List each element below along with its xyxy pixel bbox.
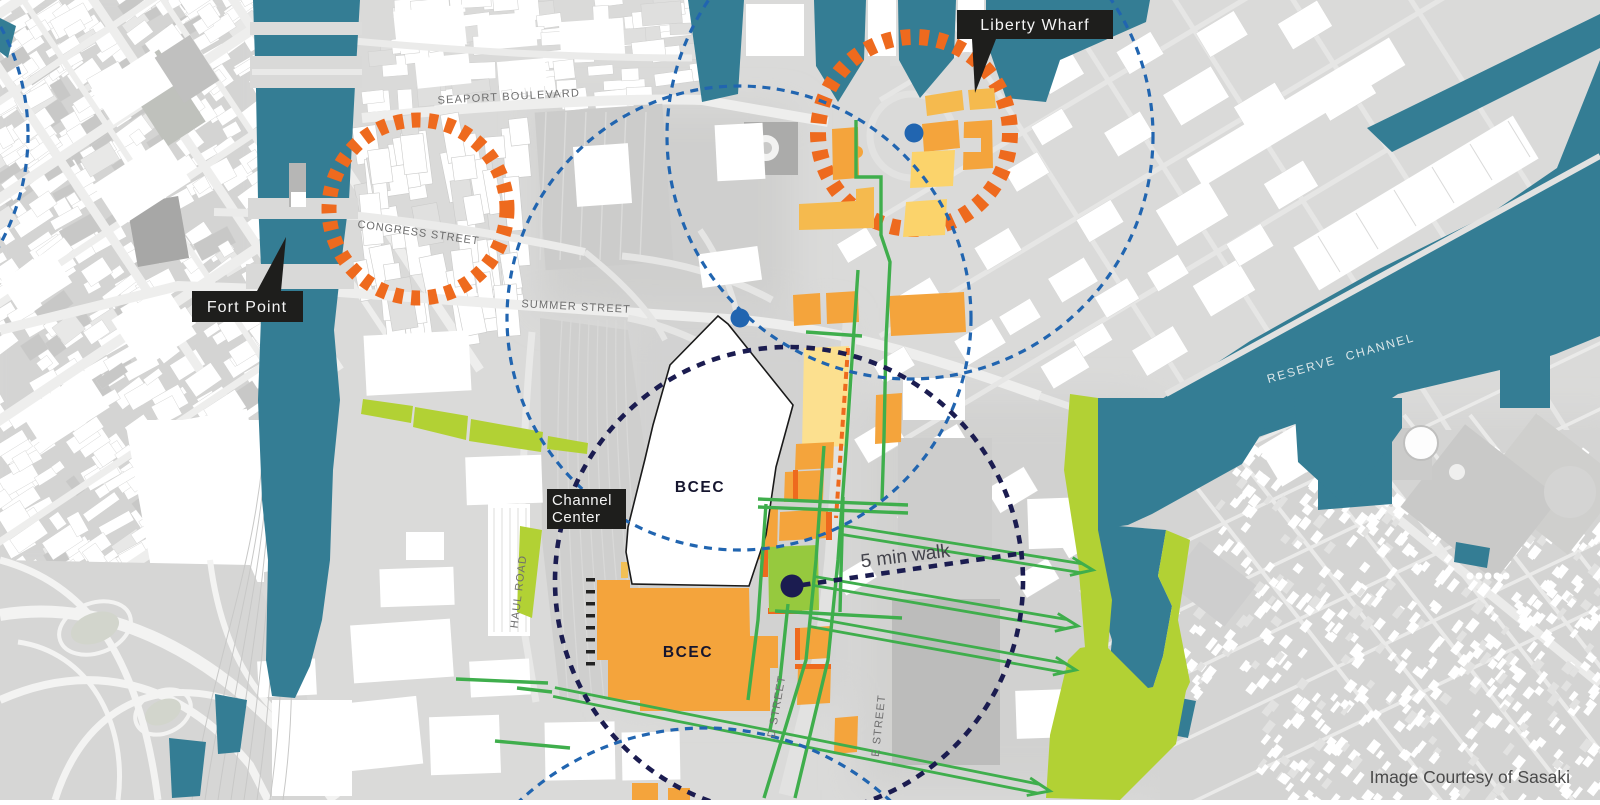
svg-text:Liberty Wharf: Liberty Wharf <box>980 17 1089 34</box>
svg-text:BCEC: BCEC <box>663 644 713 661</box>
svg-text:Channel: Channel <box>552 492 612 509</box>
svg-text:Fort Point: Fort Point <box>207 299 287 316</box>
svg-text:BCEC: BCEC <box>675 479 725 496</box>
svg-text:Image Courtesy of Sasaki: Image Courtesy of Sasaki <box>1370 767 1570 787</box>
svg-text:Center: Center <box>552 509 601 526</box>
